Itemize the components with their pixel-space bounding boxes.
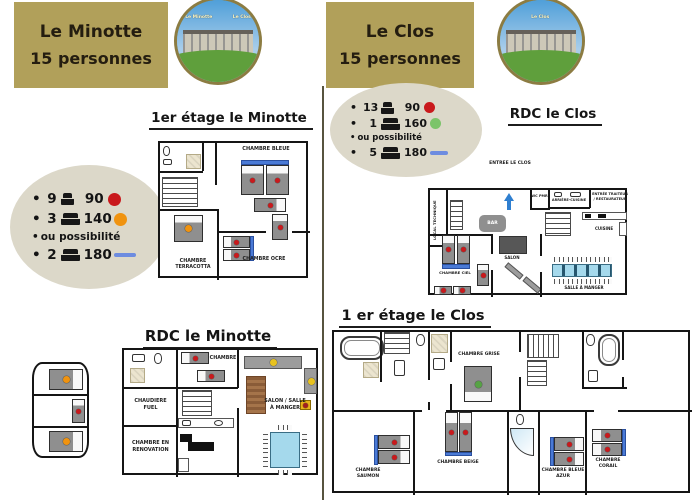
bed-icon xyxy=(272,214,288,240)
bed-icon xyxy=(459,412,472,452)
room-label: ENTREE LE CLOS xyxy=(486,161,534,167)
orange-dot-marker xyxy=(63,376,70,383)
wall xyxy=(292,231,310,233)
room-label: SALLE À MANGER xyxy=(562,285,606,290)
photo-caption-clos: Le Clos xyxy=(233,15,251,20)
stairs-icon xyxy=(545,212,571,236)
wall xyxy=(124,387,238,389)
chair-row xyxy=(263,434,268,467)
bed-note: ou possibilité xyxy=(32,231,120,243)
wall xyxy=(585,410,587,495)
photo-caption-minotte: Le Minotte xyxy=(185,15,212,20)
room-label: SALON xyxy=(501,255,523,260)
bed-icon xyxy=(592,429,622,442)
bed-icon xyxy=(197,370,225,382)
bed-size: 90 xyxy=(78,191,104,207)
bed-icon xyxy=(241,165,264,195)
wall xyxy=(237,408,239,477)
clos-floor1-plan: CHAMBRE GRISE CHAMBRE SAUMON CHAMBRE BEI… xyxy=(332,330,690,493)
sink-icon xyxy=(132,354,145,362)
wall xyxy=(176,350,178,387)
wall xyxy=(160,171,203,173)
minotte-title: Le Minotte xyxy=(40,22,143,42)
stairs-icon xyxy=(450,200,463,230)
fridge-icon xyxy=(178,458,189,472)
red-dot-marker xyxy=(209,374,214,379)
minotte-floor1-title: 1er étage le Minotte xyxy=(146,110,316,130)
room-label: CHAMBRE BLEUE AZUR xyxy=(540,468,586,480)
salon-rug-icon xyxy=(499,236,527,254)
bed-icon xyxy=(554,437,584,451)
red-dot-marker xyxy=(392,455,397,460)
chair-row xyxy=(278,425,292,430)
room-label: CHAMBRE BLEUE xyxy=(236,146,296,153)
green-dot-marker xyxy=(475,381,482,388)
dining-table-icon xyxy=(552,264,612,277)
bed-size: 140 xyxy=(84,211,110,227)
kitchen-counter xyxy=(619,222,627,236)
red-dot-marker xyxy=(108,193,121,206)
bench-icon xyxy=(522,276,541,293)
green-dot-marker xyxy=(430,118,441,129)
single-bed-icon xyxy=(381,102,394,114)
room-label: CHAMBRE BEIGE xyxy=(434,460,482,466)
sink-icon xyxy=(163,159,172,165)
room-label: SALON / SALLE À MANGER xyxy=(262,398,308,411)
red-dot-marker xyxy=(441,288,446,293)
kitchen-island xyxy=(180,434,192,442)
wall xyxy=(202,143,204,171)
bed-count: 13 xyxy=(363,101,377,114)
wall xyxy=(519,332,521,352)
red-dot-marker xyxy=(461,247,466,252)
red-dot-marker xyxy=(605,447,610,452)
bed-count: 9 xyxy=(47,191,57,207)
counter-icon xyxy=(570,192,581,197)
double-bed-icon xyxy=(174,215,203,242)
bed-icon xyxy=(434,286,452,295)
wall xyxy=(491,234,493,254)
kitchen-island xyxy=(188,442,214,451)
wall xyxy=(413,410,415,495)
room-label: CHAMBRE CORAIL xyxy=(586,458,630,470)
red-dot-marker xyxy=(449,430,454,435)
stairs-icon xyxy=(182,390,212,416)
double-bed-icon xyxy=(381,118,400,130)
wall xyxy=(428,402,430,410)
wall xyxy=(589,190,591,208)
orange-dot-marker xyxy=(114,213,127,226)
entrance-arrow-icon xyxy=(504,193,514,211)
wall xyxy=(618,410,692,412)
red-dot-marker xyxy=(567,442,572,447)
stove-icon xyxy=(214,420,223,426)
sink-icon xyxy=(588,370,598,382)
sink-icon xyxy=(433,358,445,370)
red-dot-marker xyxy=(275,178,280,183)
room-label: ARRIÈRE-CUISINE xyxy=(549,198,589,203)
wall xyxy=(34,426,87,428)
chair-row xyxy=(278,470,292,475)
minotte-annex-plan xyxy=(32,362,89,458)
room-label: CHAUDIERE FUEL xyxy=(129,398,172,411)
orange-dot-marker xyxy=(63,438,70,445)
room-label: CUISINE xyxy=(588,226,620,231)
room-label: CHAMBRE OCRE xyxy=(238,257,290,263)
bed-size: 180 xyxy=(404,146,426,159)
red-dot-marker xyxy=(76,409,81,414)
toilet-icon xyxy=(154,353,162,364)
bed-icon xyxy=(457,235,470,264)
bar-counter: BAR xyxy=(479,215,506,232)
minotte-floor1-plan: CHAMBRE BLEUE CHAMBRE TERRACOTTA CHAMBRE… xyxy=(158,141,308,278)
photo-caption-clos: Le Clos xyxy=(531,15,549,20)
room-label: CHAMBRE SAUMON xyxy=(346,468,390,480)
blue-headboard xyxy=(445,452,472,456)
wall xyxy=(582,332,584,387)
red-dot-marker xyxy=(481,273,486,278)
chair-row xyxy=(554,279,612,284)
clos-rdc-plan: LOCAL TECHNIQUE BAR WC PMR ARRIÈRE-CUISI… xyxy=(428,188,627,295)
wall xyxy=(540,272,542,297)
room-label: CHAMBRE EN RENOVATION xyxy=(127,440,174,453)
bed-icon xyxy=(254,198,286,212)
minotte-photo: Le Minotte Le Clos xyxy=(174,0,262,85)
red-dot-marker xyxy=(460,288,465,293)
bed-spec-row: 13 90 xyxy=(350,101,435,114)
red-dot-marker xyxy=(446,247,451,252)
bed-icon xyxy=(592,443,622,456)
yellow-dot-marker xyxy=(270,359,277,366)
room-label: ENTRÉE TRAITEUR / RESTAURATEUR xyxy=(592,192,628,201)
toilet-icon xyxy=(516,414,524,425)
minotte-subtitle: 15 personnes xyxy=(30,49,152,68)
bed-size: 180 xyxy=(84,247,110,263)
shower-icon xyxy=(130,368,145,383)
red-dot-marker xyxy=(605,433,610,438)
red-dot-marker xyxy=(278,225,283,230)
shower-icon xyxy=(186,154,201,169)
bed-icon xyxy=(181,352,209,364)
chair-row xyxy=(302,434,307,467)
wall xyxy=(380,332,382,382)
wall xyxy=(530,190,532,208)
flyer-page: Le Minotte 15 personnes Le Minotte Le Cl… xyxy=(0,0,700,500)
double-bed-icon xyxy=(61,249,80,261)
bed-spec-row: 3 140 xyxy=(32,211,127,227)
bed-icon xyxy=(49,431,83,452)
red-dot-marker xyxy=(392,440,397,445)
red-dot-marker xyxy=(193,356,198,361)
bed-icon xyxy=(223,236,250,248)
red-dot-marker xyxy=(567,457,572,462)
single-bed-icon xyxy=(61,193,74,205)
sink-icon xyxy=(554,192,562,197)
quarter-shower-icon xyxy=(510,428,534,456)
bed-spec-row: 9 90 xyxy=(32,191,121,207)
wall xyxy=(217,231,266,233)
clos-bed-summary: 13 90 1 160 ou possibilité 5 180 xyxy=(330,83,482,177)
bed-spec-row: 5 180 xyxy=(350,146,448,159)
minotte-bed-summary: 9 90 3 140 ou possibilité 2 180 xyxy=(10,165,168,289)
bathtub-icon xyxy=(598,334,620,366)
blue-headboard xyxy=(442,264,470,269)
wall xyxy=(334,410,422,412)
wall xyxy=(622,377,624,387)
wall xyxy=(622,332,624,360)
double-bed-icon xyxy=(381,147,400,159)
bed-icon xyxy=(554,452,584,466)
photo-grass xyxy=(174,50,262,85)
bed-icon xyxy=(477,264,489,286)
bed-icon xyxy=(378,450,410,464)
red-dot-marker xyxy=(234,240,239,245)
bed-count: 5 xyxy=(363,146,377,159)
wall xyxy=(538,410,540,495)
chair-row xyxy=(554,257,612,262)
clos-header: Le Clos 15 personnes xyxy=(326,2,474,88)
orange-dot-marker xyxy=(185,225,192,232)
bed-size: 90 xyxy=(398,101,420,114)
wall xyxy=(428,332,430,380)
clos-photo: Le Clos xyxy=(497,0,585,85)
blue-dash-marker xyxy=(430,151,448,155)
clos-subtitle: 15 personnes xyxy=(339,49,461,68)
wall xyxy=(215,143,217,185)
bed-icon xyxy=(378,435,410,449)
red-dot-marker xyxy=(268,203,273,208)
room-label: CHAMBRE GRISE xyxy=(456,352,502,358)
wall xyxy=(450,332,452,362)
stairs-icon xyxy=(527,334,559,358)
sink-icon xyxy=(394,360,405,376)
column-divider xyxy=(322,86,324,500)
wall xyxy=(34,394,87,396)
stairs-icon xyxy=(162,177,198,207)
wall xyxy=(507,410,509,495)
bathtub-icon xyxy=(340,336,384,360)
bed-icon xyxy=(266,165,289,195)
stairs-icon xyxy=(527,360,547,386)
room-label: CHAMBRE TERRACOTTA xyxy=(166,259,220,271)
wall xyxy=(582,387,627,389)
bed-spec-row: 1 160 xyxy=(350,117,441,130)
shower-icon xyxy=(363,362,379,378)
wall xyxy=(530,208,550,210)
room-label: CHAMBRE xyxy=(208,356,238,362)
room-label: WC PMR xyxy=(530,194,549,199)
shower-icon xyxy=(431,334,448,353)
bed-icon xyxy=(442,235,455,264)
sink-icon xyxy=(182,420,191,426)
red-dot-marker xyxy=(463,430,468,435)
minotte-header: Le Minotte 15 personnes xyxy=(14,2,168,88)
wall xyxy=(549,207,590,209)
wall xyxy=(124,425,177,427)
double-bed-icon xyxy=(61,213,80,225)
photo-grass xyxy=(497,50,585,85)
room-label: CHAMBRE CIEL xyxy=(438,271,472,276)
bed-note: ou possibilité xyxy=(350,133,422,143)
clos-floor1-title: 1 er étage le Clos xyxy=(332,308,498,328)
minotte-rdc-title: RDC le Minotte xyxy=(110,327,310,349)
bed-count: 2 xyxy=(47,247,57,263)
toilet-icon xyxy=(163,146,170,156)
blue-dash-marker xyxy=(114,253,136,257)
bed-icon xyxy=(453,286,471,295)
clos-title: Le Clos xyxy=(366,22,434,42)
bed-icon xyxy=(445,412,458,452)
bed-icon xyxy=(49,369,83,390)
stairs-icon xyxy=(384,332,410,354)
wall xyxy=(450,384,452,410)
red-dot-marker xyxy=(424,102,435,113)
bed-spec-row: 2 180 xyxy=(32,247,136,263)
bench-icon xyxy=(504,262,523,279)
minotte-rdc-plan: CHAMBRE CHAUDIERE FUEL CHAMBRE EN RENOVA… xyxy=(122,348,318,475)
dining-table-icon xyxy=(270,432,300,468)
stove-icon xyxy=(585,214,591,218)
clos-rdc-title: RDC le Clos xyxy=(496,106,614,126)
wall xyxy=(540,234,542,256)
sink-icon xyxy=(598,214,606,218)
wall xyxy=(519,377,521,410)
double-bed-icon xyxy=(464,366,492,402)
red-dot-marker xyxy=(250,178,255,183)
yellow-dot-marker xyxy=(308,378,315,385)
bed-count: 3 xyxy=(47,211,57,227)
blue-headboard xyxy=(622,429,626,456)
bed-size: 160 xyxy=(404,117,426,130)
wall xyxy=(491,270,493,297)
toilet-icon xyxy=(416,334,425,346)
wall xyxy=(160,209,217,211)
bed-count: 1 xyxy=(363,117,377,130)
toilet-icon xyxy=(586,334,595,346)
bed-icon xyxy=(72,399,85,423)
